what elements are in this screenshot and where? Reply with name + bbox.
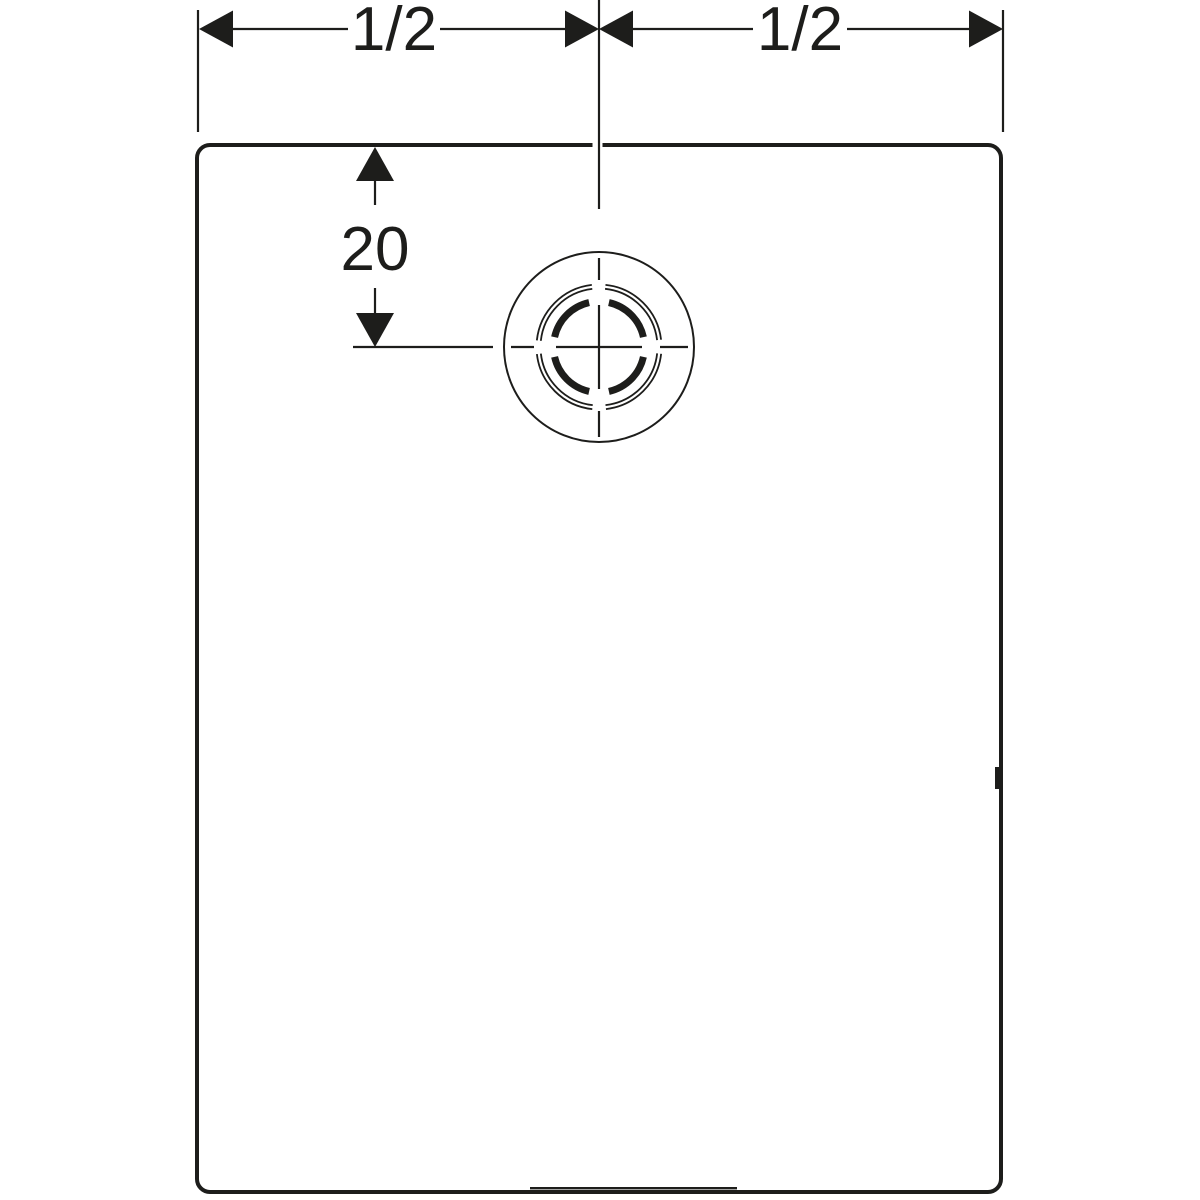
right-edge-mark — [995, 767, 999, 789]
dim-label-left-half: 1/2 — [351, 0, 437, 64]
drain-symbol — [504, 252, 694, 442]
arrow-down-icon — [356, 313, 394, 347]
arrow-center-right-icon — [599, 11, 633, 48]
technical-drawing: 1/2 1/2 20 — [0, 0, 1200, 1200]
arrow-right-outer-icon — [969, 11, 1003, 48]
drawing-canvas: 1/2 1/2 20 — [0, 0, 1200, 1200]
arrow-left-outer-icon — [199, 11, 233, 48]
bottom-edge-mark — [530, 1187, 737, 1189]
dim-label-right-half: 1/2 — [757, 0, 843, 64]
drain-crosshair — [511, 258, 688, 437]
top-edge-centerline-gap — [593, 140, 603, 149]
arrow-up-icon — [356, 147, 394, 181]
tray-outline — [197, 145, 1001, 1192]
arrow-center-left-icon — [565, 11, 599, 48]
dim-label-drain-offset: 20 — [341, 215, 410, 284]
